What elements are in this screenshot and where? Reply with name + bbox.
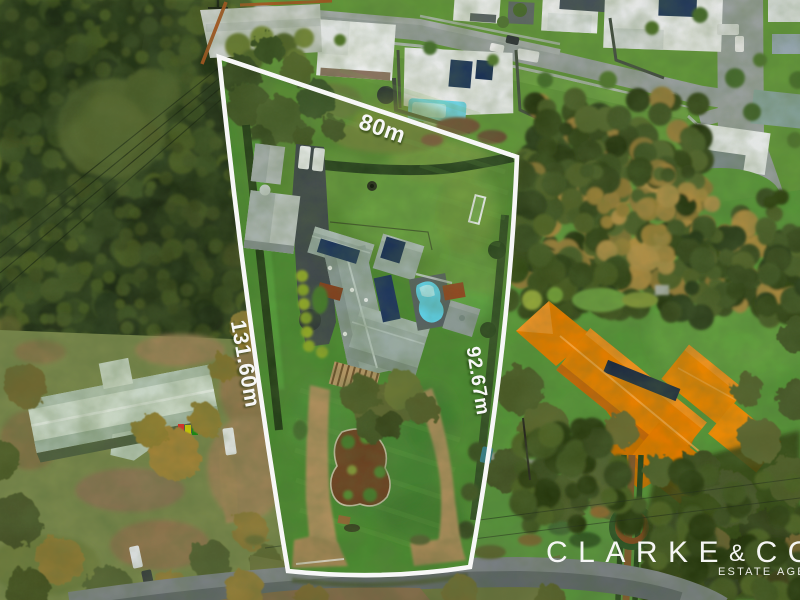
svg-text:ESTATE AGENTS: ESTATE AGENTS <box>718 566 800 578</box>
svg-text:CLARKE&CO: CLARKE&CO <box>546 536 800 569</box>
